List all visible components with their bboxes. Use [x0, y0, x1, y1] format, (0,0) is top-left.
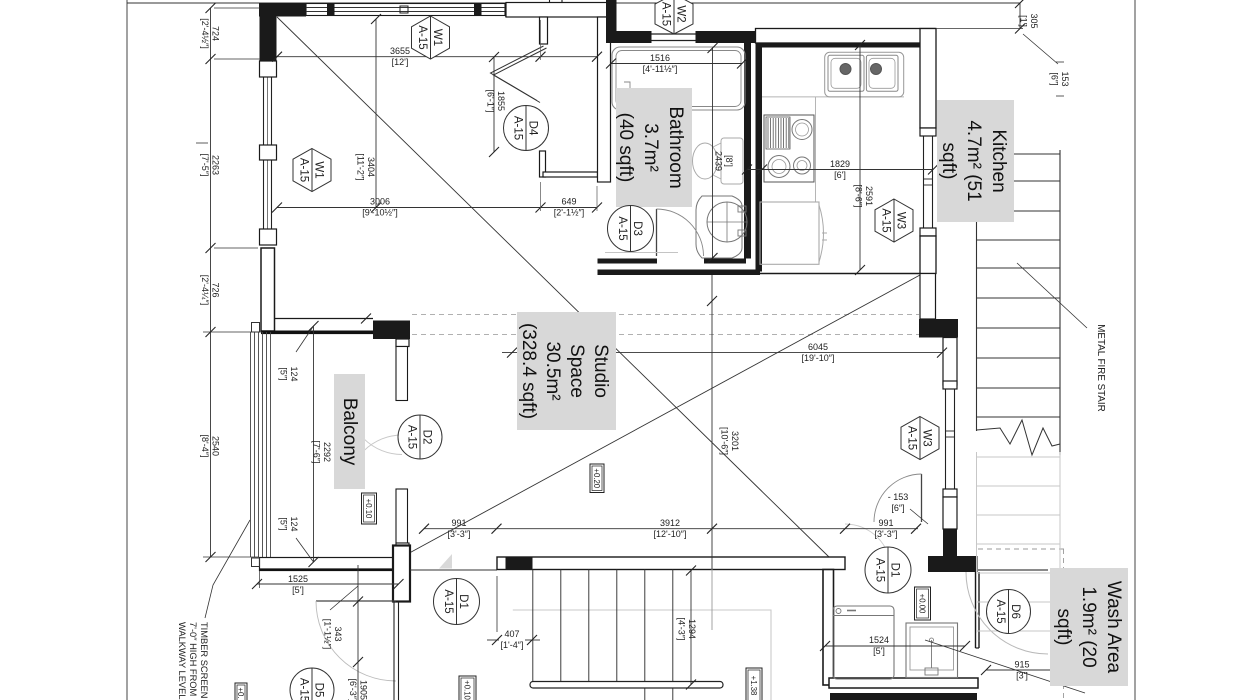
- svg-text:1905: 1905: [358, 680, 368, 700]
- svg-text:+0.: +0.: [236, 687, 245, 698]
- svg-text:[5″]: [5″]: [278, 367, 288, 380]
- svg-text:991: 991: [451, 518, 466, 528]
- svg-text:A-15: A-15: [416, 25, 428, 49]
- svg-text:[5″]: [5″]: [278, 517, 288, 530]
- svg-text:30.5m²: 30.5m²: [542, 341, 563, 400]
- svg-text:A-15: A-15: [298, 158, 310, 182]
- svg-text:3006: 3006: [370, 197, 390, 207]
- svg-text:[6″]: [6″]: [1049, 72, 1059, 85]
- svg-text:+0.00: +0.00: [917, 594, 926, 614]
- svg-text:[19'-10″]: [19'-10″]: [802, 353, 835, 363]
- svg-text:Kitchen: Kitchen: [988, 129, 1009, 192]
- svg-text:305: 305: [1029, 13, 1039, 28]
- svg-text:[8'-6″]: [8'-6″]: [853, 185, 863, 208]
- svg-text:343: 343: [333, 626, 343, 641]
- svg-text:[10'-6″]: [10'-6″]: [719, 427, 729, 455]
- svg-text:4.7m² (51: 4.7m² (51: [963, 120, 984, 201]
- svg-text:1524: 1524: [869, 635, 889, 645]
- svg-text:124: 124: [289, 516, 299, 531]
- svg-text:[8'-4″]: [8'-4″]: [200, 435, 210, 458]
- svg-text:Balcony: Balcony: [339, 398, 360, 466]
- svg-text:[6']: [6']: [834, 170, 846, 180]
- svg-text:2439: 2439: [713, 151, 723, 171]
- svg-text:[5']: [5']: [873, 646, 885, 656]
- svg-text:+0.10: +0.10: [364, 499, 373, 519]
- svg-text:W1: W1: [431, 29, 443, 46]
- svg-text:649: 649: [561, 197, 576, 207]
- svg-text:A-15: A-15: [874, 558, 886, 582]
- svg-text:[1'-1½″]: [1'-1½″]: [322, 619, 332, 649]
- svg-text:[5']: [5']: [292, 585, 304, 595]
- svg-text:WALKWAY LEVEL: WALKWAY LEVEL: [177, 622, 187, 700]
- svg-text:METAL FIRE STAIR: METAL FIRE STAIR: [1095, 324, 1106, 411]
- svg-text:[3'-3″]: [3'-3″]: [448, 529, 471, 539]
- svg-text:Space: Space: [566, 344, 587, 398]
- svg-text:+0.20: +0.20: [592, 468, 601, 488]
- svg-text:A-15: A-15: [512, 116, 524, 140]
- svg-text:D1: D1: [888, 563, 900, 578]
- svg-text:A-15: A-15: [298, 678, 310, 700]
- svg-text:[3'-3″]: [3'-3″]: [875, 529, 898, 539]
- svg-text:6045: 6045: [808, 342, 828, 352]
- svg-text:D1: D1: [457, 594, 469, 609]
- svg-text:3655: 3655: [390, 46, 410, 56]
- svg-text:Wash Area: Wash Area: [1103, 581, 1124, 674]
- svg-text:3201: 3201: [730, 431, 740, 451]
- svg-text:[2'-4½″]: [2'-4½″]: [200, 18, 210, 48]
- svg-text:1.9m² (20: 1.9m² (20: [1078, 586, 1099, 667]
- svg-text:D2: D2: [420, 430, 432, 445]
- svg-text:A-15: A-15: [660, 2, 672, 26]
- svg-text:3.7m²: 3.7m²: [640, 123, 661, 172]
- svg-text:7'-0″ HIGH FROM: 7'-0″ HIGH FROM: [188, 622, 198, 696]
- svg-text:726: 726: [210, 282, 220, 297]
- svg-text:2263: 2263: [210, 155, 220, 175]
- svg-text:[8']: [8']: [724, 155, 734, 167]
- svg-text:W2: W2: [674, 5, 686, 22]
- svg-text:[11'-2″]: [11'-2″]: [355, 153, 365, 180]
- svg-text:407: 407: [504, 629, 519, 639]
- svg-text:A-15: A-15: [442, 589, 454, 613]
- svg-text:[7'-5″]: [7'-5″]: [200, 154, 210, 177]
- svg-text:124: 124: [289, 366, 299, 381]
- svg-text:Studio: Studio: [590, 344, 611, 398]
- svg-text:+1.38: +1.38: [749, 676, 758, 696]
- svg-text:A-15: A-15: [906, 426, 918, 450]
- svg-text:1516: 1516: [650, 53, 670, 63]
- svg-text:3912: 3912: [660, 518, 680, 528]
- svg-text:[12'-10″]: [12'-10″]: [654, 529, 687, 539]
- svg-text:2292: 2292: [322, 442, 332, 462]
- svg-text:724: 724: [210, 26, 220, 41]
- svg-text:[9'-10½″]: [9'-10½″]: [362, 208, 397, 218]
- svg-text:1525: 1525: [288, 574, 308, 584]
- svg-text:+0.10: +0.10: [462, 680, 471, 700]
- svg-text:1855: 1855: [496, 91, 506, 111]
- svg-text:[6″]: [6″]: [891, 503, 904, 513]
- svg-text:3404: 3404: [366, 157, 376, 177]
- svg-text:W3: W3: [920, 429, 932, 446]
- svg-text:2540: 2540: [210, 436, 220, 456]
- svg-text:915: 915: [1014, 660, 1029, 670]
- svg-text:[2'-1½″]: [2'-1½″]: [554, 208, 584, 218]
- svg-text:2591: 2591: [864, 186, 874, 206]
- svg-text:[7'-6″]: [7'-6″]: [311, 441, 321, 464]
- svg-text:[6'-3″]: [6'-3″]: [348, 679, 358, 700]
- svg-text:A-15: A-15: [406, 425, 418, 449]
- svg-text:D4: D4: [526, 121, 538, 136]
- svg-text:[3']: [3']: [1016, 671, 1028, 681]
- svg-text:[6'-1″]: [6'-1″]: [485, 90, 495, 113]
- svg-text:1294: 1294: [687, 619, 697, 639]
- svg-text:sqft): sqft): [1053, 609, 1074, 646]
- svg-text:[2'-4¼″]: [2'-4¼″]: [200, 275, 210, 305]
- svg-text:1829: 1829: [830, 159, 850, 169]
- svg-text:Bathroom: Bathroom: [665, 106, 686, 188]
- svg-text:[12']: [12']: [392, 57, 409, 67]
- svg-text:(40 sqft): (40 sqft): [615, 113, 636, 183]
- svg-text:153: 153: [1060, 71, 1070, 86]
- svg-text:D6: D6: [1009, 604, 1021, 619]
- svg-text:(328.4 sqft): (328.4 sqft): [518, 323, 539, 419]
- svg-text:D3: D3: [631, 221, 643, 236]
- svg-text:A-15: A-15: [616, 216, 628, 240]
- svg-text:A-15: A-15: [994, 599, 1006, 623]
- svg-text:W3: W3: [894, 212, 906, 229]
- svg-text:[1']: [1']: [1018, 15, 1028, 27]
- svg-text:[4'-11½″]: [4'-11½″]: [643, 64, 678, 74]
- svg-text:W1: W1: [312, 161, 324, 178]
- svg-text:sqft): sqft): [938, 143, 959, 180]
- svg-text:- 153: - 153: [888, 492, 909, 502]
- svg-text:D5: D5: [312, 683, 324, 698]
- svg-text:A-15: A-15: [880, 208, 892, 232]
- svg-text:[4'-3″]: [4'-3″]: [676, 618, 686, 641]
- svg-text:991: 991: [878, 518, 893, 528]
- svg-text:[1'-4″]: [1'-4″]: [501, 640, 524, 650]
- svg-text:TIMBER SCREEN: TIMBER SCREEN: [199, 622, 209, 698]
